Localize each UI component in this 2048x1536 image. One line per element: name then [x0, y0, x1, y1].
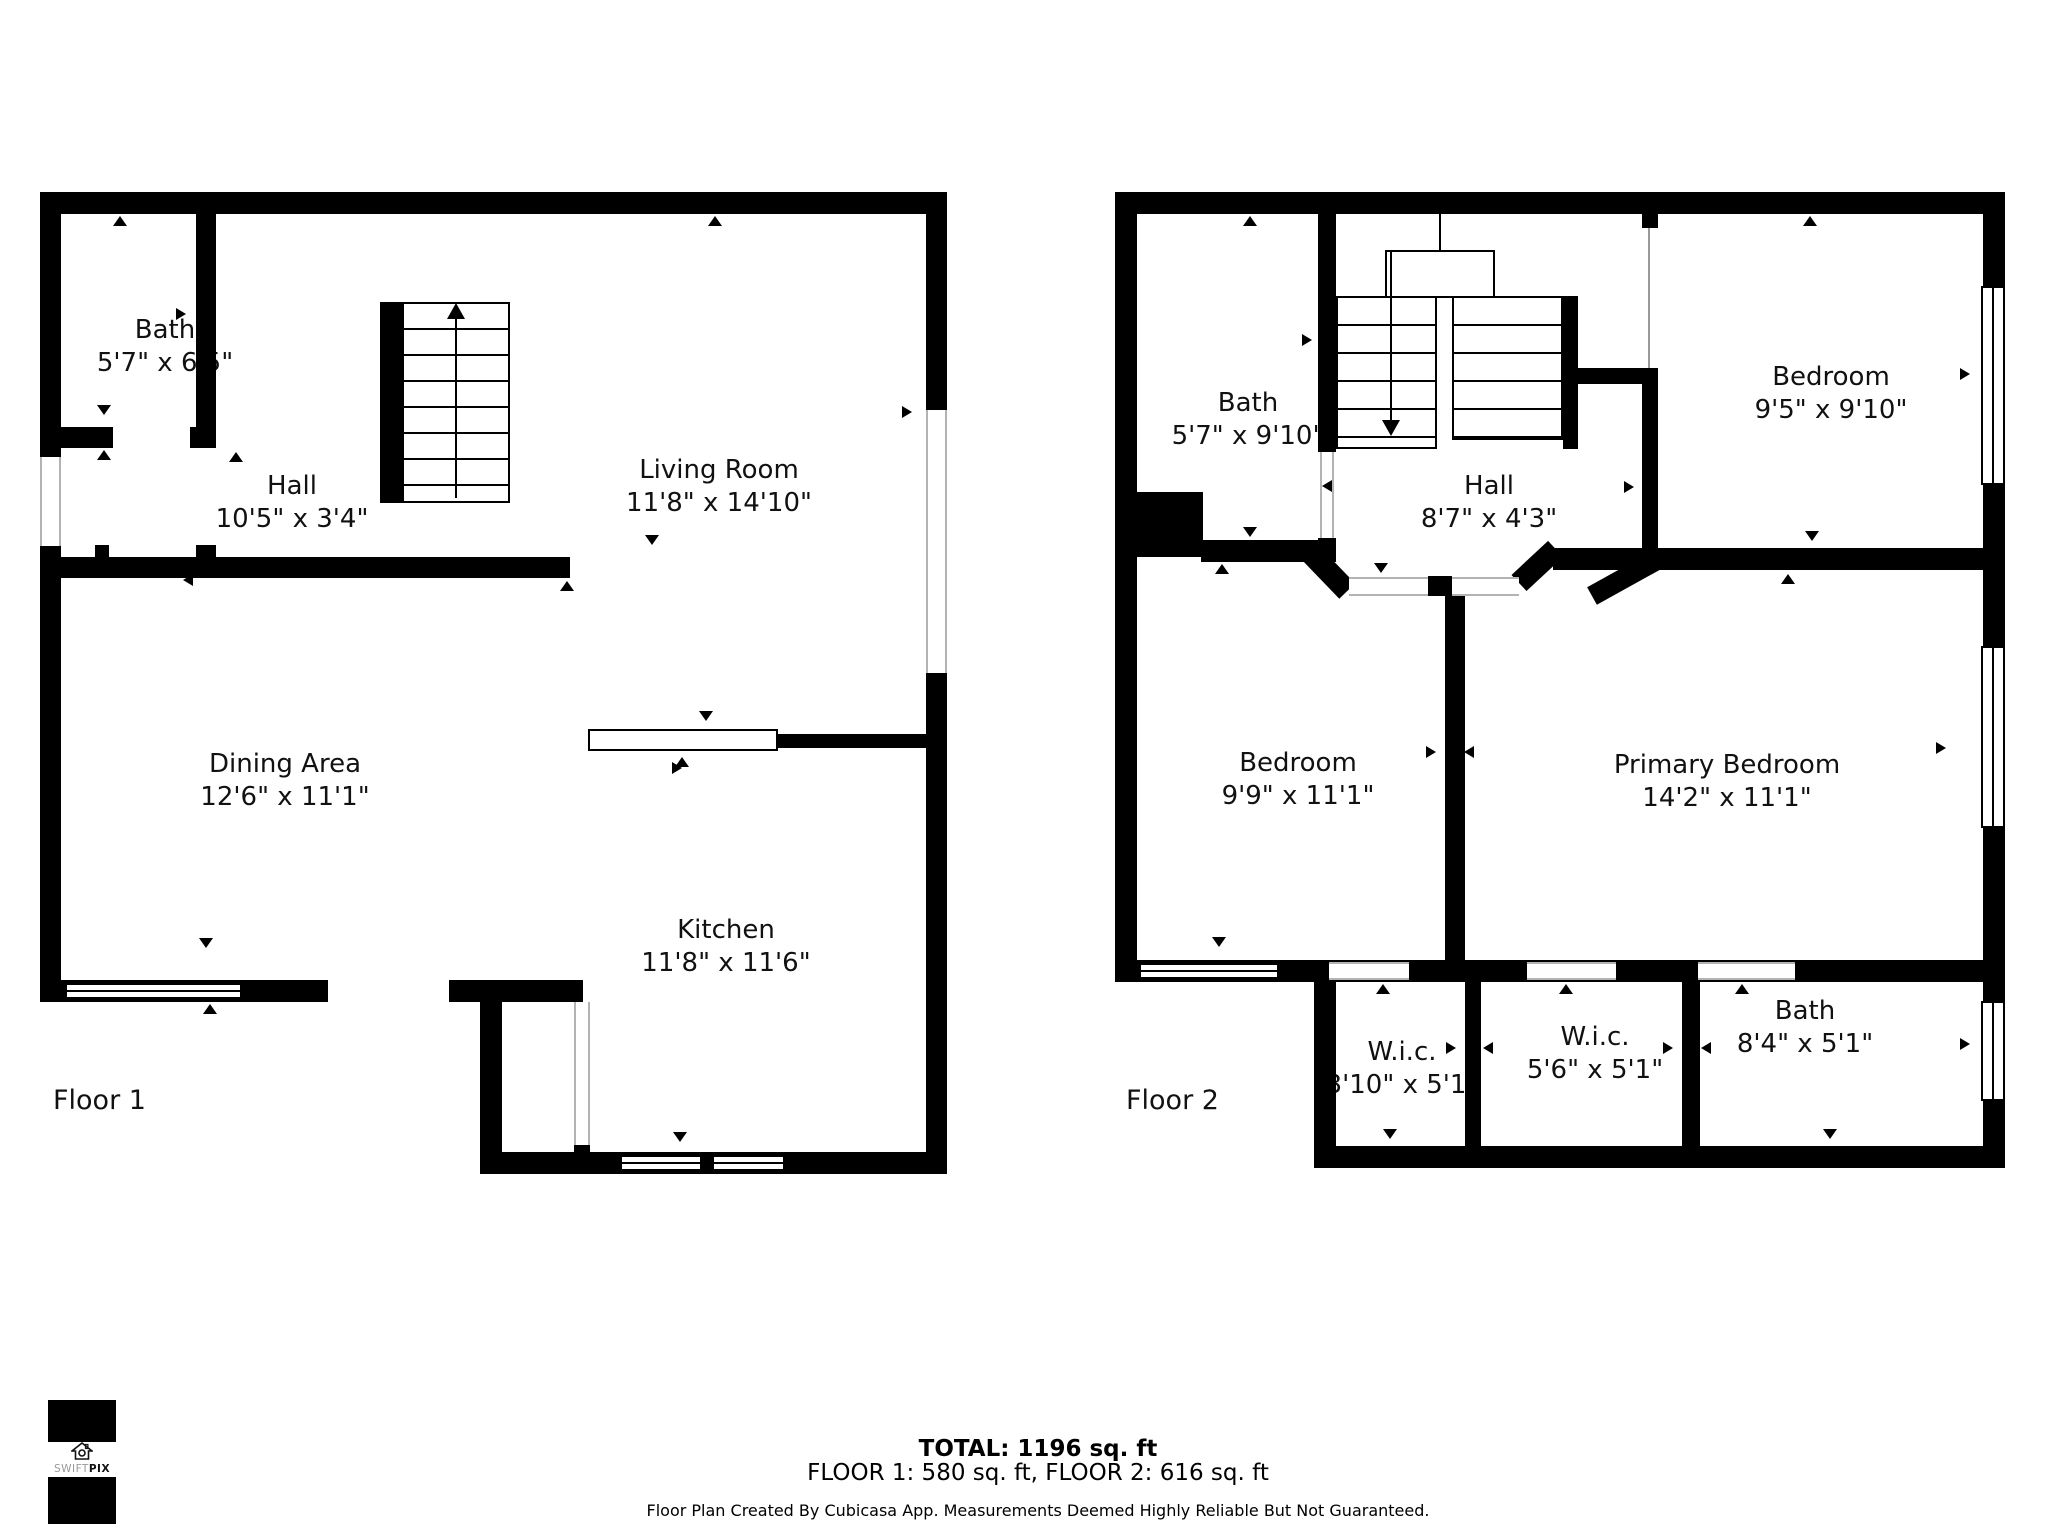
- marker-icon: [673, 1132, 687, 1142]
- marker-icon: [176, 308, 186, 320]
- wall-stub: [1642, 214, 1658, 228]
- marker-icon: [1735, 984, 1749, 994]
- logo-wordmark: SWIFTPIX: [48, 1464, 116, 1475]
- door-opening: [1527, 962, 1616, 980]
- house-camera-icon: [71, 1442, 93, 1460]
- wall-chimney: [1115, 492, 1203, 557]
- wall: [190, 427, 216, 448]
- kitchen-counter: [588, 729, 778, 751]
- wall-stub: [574, 1145, 590, 1157]
- door-opening: [328, 980, 449, 1002]
- door-leaf-line: [1648, 228, 1650, 368]
- stair-arrow-stem: [455, 318, 457, 498]
- marker-icon: [1464, 746, 1474, 758]
- marker-icon: [1302, 334, 1312, 346]
- marker-icon: [1559, 984, 1573, 994]
- wall-stub: [95, 545, 109, 557]
- wall: [1314, 982, 1336, 1168]
- marker-icon: [199, 938, 213, 948]
- wall: [61, 427, 113, 448]
- marker-icon: [203, 1004, 217, 1014]
- stair-arrow-down: [1382, 420, 1400, 436]
- marker-icon: [1121, 334, 1131, 346]
- marker-icon: [1243, 527, 1257, 537]
- room-label-dining-area: Dining Area12'6" x 11'1": [200, 748, 369, 814]
- wall: [1553, 548, 1985, 570]
- stair-line: [1439, 214, 1441, 250]
- marker-icon: [1426, 746, 1436, 758]
- room-label-bath-f2-lower: Bath8'4" x 5'1": [1737, 995, 1873, 1061]
- window: [1981, 1001, 2005, 1101]
- marker-icon: [229, 452, 243, 462]
- marker-icon: [1781, 574, 1795, 584]
- door-opening: [574, 1002, 590, 1145]
- swiftpix-logo: SWIFTPIX: [48, 1400, 116, 1524]
- room-label-primary-bedroom: Primary Bedroom14'2" x 11'1": [1614, 749, 1840, 815]
- marker-icon: [708, 216, 722, 226]
- marker-icon: [1121, 746, 1131, 758]
- marker-icon: [902, 406, 912, 418]
- wall: [1115, 192, 2005, 214]
- wall: [1318, 214, 1336, 452]
- marker-icon: [44, 308, 54, 320]
- marker-icon: [1663, 1042, 1673, 1054]
- wall: [196, 214, 216, 427]
- marker-icon: [645, 535, 659, 545]
- marker-icon: [1624, 481, 1634, 493]
- marker-icon: [1805, 531, 1819, 541]
- door-opening: [1698, 962, 1795, 980]
- floor-2-tag: Floor 2: [1126, 1085, 1219, 1116]
- marker-icon: [1322, 480, 1332, 492]
- stair-landing: [1385, 250, 1495, 298]
- marker-icon: [699, 711, 713, 721]
- window: [65, 983, 242, 999]
- floor-1-tag: Floor 1: [53, 1085, 146, 1116]
- marker-icon: [1483, 1042, 1493, 1054]
- room-label-bedroom-2: Bedroom9'9" x 11'1": [1222, 747, 1375, 813]
- room-label-bedroom-1: Bedroom9'5" x 9'10": [1755, 361, 1908, 427]
- wall: [1465, 960, 1481, 1168]
- stair-treads: [1452, 296, 1563, 440]
- window: [1981, 646, 2005, 828]
- room-label-wic-right: W.i.c.5'6" x 5'1": [1527, 1021, 1663, 1087]
- logo-middle: SWIFTPIX: [48, 1442, 116, 1477]
- marker-icon: [1383, 1129, 1397, 1139]
- marker-icon: [44, 764, 54, 776]
- total-area-text: TOTAL: 1196 sq. ft: [0, 1436, 2048, 1462]
- marker-icon: [1803, 216, 1817, 226]
- marker-icon: [1701, 1042, 1711, 1054]
- wall: [40, 557, 570, 578]
- wall: [1563, 296, 1578, 449]
- wall: [1445, 596, 1465, 960]
- stair-wall: [380, 302, 402, 503]
- wall: [1642, 368, 1658, 566]
- room-label-living-room: Living Room11'8" x 14'10": [626, 454, 812, 520]
- marker-icon: [1243, 216, 1257, 226]
- marker-icon: [1376, 984, 1390, 994]
- marker-icon: [1960, 1038, 1970, 1050]
- marker-icon: [183, 574, 193, 586]
- wall: [777, 734, 926, 748]
- window: [712, 1155, 785, 1171]
- marker-icon: [1446, 1042, 1456, 1054]
- stair-arrow-stem: [1390, 252, 1392, 422]
- floor-areas-text: FLOOR 1: 580 sq. ft, FLOOR 2: 616 sq. ft: [0, 1460, 2048, 1486]
- window: [1981, 286, 2005, 485]
- marker-icon: [113, 216, 127, 226]
- room-label-kitchen: Kitchen11'8" x 11'6": [641, 914, 810, 980]
- room-label-hall-f2: Hall8'7" x 4'3": [1421, 470, 1557, 536]
- wall-stub: [196, 545, 216, 557]
- wall: [1314, 1146, 2005, 1168]
- marker-icon: [560, 581, 574, 591]
- window: [1139, 963, 1279, 979]
- wall: [1115, 192, 1137, 982]
- wall-stub: [1428, 576, 1452, 596]
- marker-icon: [97, 405, 111, 415]
- door-opening: [1349, 577, 1428, 596]
- room-label-bath-f2: Bath5'7" x 9'10": [1172, 387, 1325, 453]
- marker-icon: [97, 450, 111, 460]
- logo-top-block: [48, 1400, 116, 1442]
- door-opening: [1320, 452, 1334, 538]
- marker-icon: [1936, 742, 1946, 754]
- wall: [480, 1002, 502, 1174]
- window: [620, 1155, 702, 1171]
- disclaimer-text: Floor Plan Created By Cubicasa App. Meas…: [0, 1501, 2048, 1520]
- wall: [1682, 982, 1700, 1168]
- marker-icon: [1212, 937, 1226, 947]
- marker-icon: [1823, 1129, 1837, 1139]
- room-label-hall-f1: Hall10'5" x 3'4": [216, 470, 369, 536]
- door-opening: [40, 457, 61, 546]
- marker-icon: [1374, 563, 1388, 573]
- door-opening: [1452, 577, 1519, 596]
- stair-arrow-up: [447, 303, 465, 319]
- wall: [926, 192, 947, 1174]
- marker-icon: [1960, 368, 1970, 380]
- logo-bottom-block: [48, 1477, 116, 1524]
- marker-icon: [1215, 564, 1229, 574]
- marker-icon: [675, 757, 689, 767]
- door-opening: [1329, 962, 1409, 980]
- wall: [1578, 368, 1642, 384]
- floor-plan-canvas: Bath5'7" x 6'5" Hall10'5" x 3'4" Living …: [0, 0, 2048, 1536]
- door-opening: [926, 410, 947, 673]
- wall: [40, 192, 947, 214]
